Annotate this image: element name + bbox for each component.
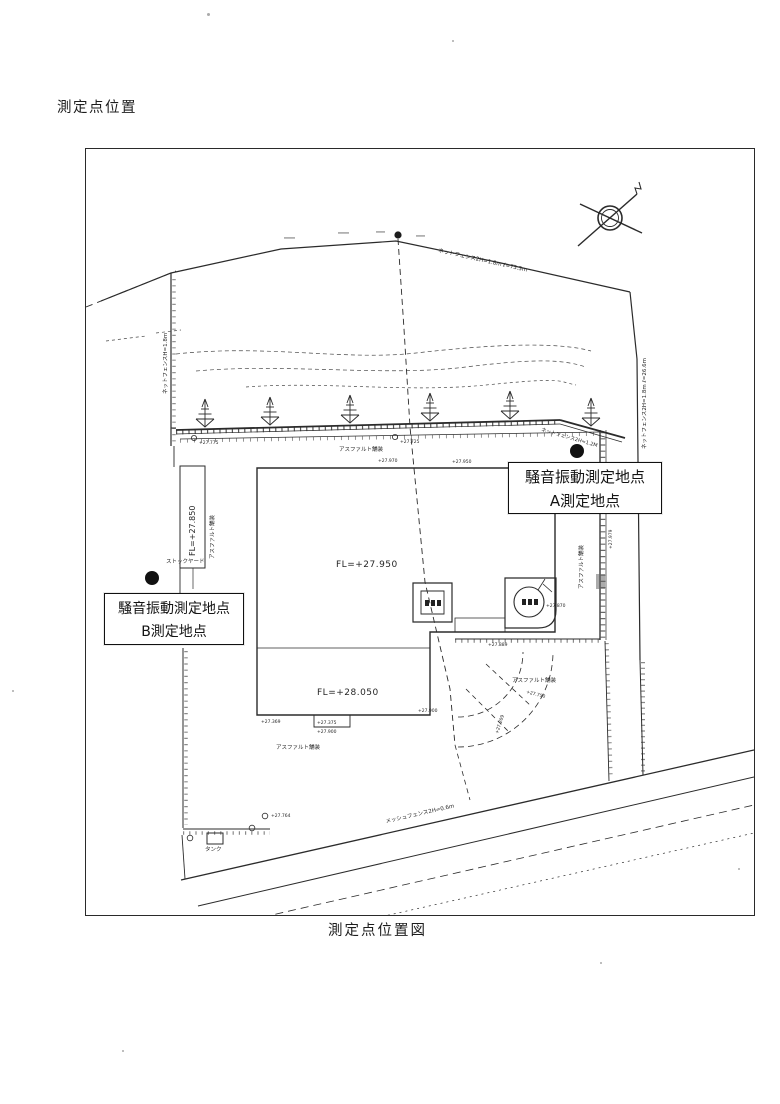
elev-27369: +27.369 [261, 719, 281, 725]
callout-b-title: 騒音振動測定地点 [118, 598, 230, 618]
asphalt-label-1: アスファルト舗装 [339, 445, 384, 453]
scan-speckle [12, 690, 14, 692]
elev-27900-b: +27.900 [418, 708, 438, 714]
elev-27375: +27.375 [317, 720, 337, 726]
platform-structure [455, 618, 505, 632]
elev-27870: +27.870 [546, 603, 566, 609]
elev-27775-a: +27.775 [199, 440, 219, 446]
scan-micro-marks [284, 231, 425, 239]
elev-27979: +27.979 [608, 529, 614, 549]
scanned-page: 測定点位置 [0, 0, 780, 1104]
plan-labels: FL=+27.950 FL=+28.050 FL=+27.850 ネットフェンス… [162, 247, 648, 853]
fence-left-label: ネットフェンスH=1.8m [162, 333, 169, 394]
elev-27725: +27.725 [400, 439, 420, 445]
callout-measure-point-a: 騒音振動測定地点 A測定地点 [508, 462, 662, 514]
asphalt-label-5: アスファルト舗装 [208, 514, 216, 559]
road [181, 750, 754, 915]
fl-main-label: FL=+27.950 [336, 560, 398, 570]
site-plan-drawing: FL=+27.950 FL=+28.050 FL=+27.850 ネットフェンス… [86, 149, 754, 915]
scan-speckle [738, 868, 740, 870]
figure-frame: FL=+27.950 FL=+28.050 FL=+27.850 ネットフェンス… [85, 148, 755, 916]
elev-27970: +27.970 [378, 458, 398, 464]
contour-lines [106, 330, 591, 388]
scan-speckle [600, 962, 602, 964]
fence-right-label: ネットフェンス2H=1.8m ℓ=26.6m [641, 358, 648, 449]
elev-27750: +27.750 [525, 689, 546, 700]
tank-round-structure [505, 578, 556, 628]
fence-road-label: メッシュフェンス2H=0.6m [385, 803, 455, 825]
callout-a-point: A測定地点 [550, 490, 620, 511]
callout-a-title: 騒音振動測定地点 [525, 466, 645, 487]
scan-speckle [207, 13, 210, 16]
elev-27950: +27.950 [452, 459, 472, 465]
elev-27209: +27.209 [494, 714, 506, 735]
measure-point-b-dot [145, 571, 159, 585]
guard-structure [413, 583, 452, 622]
callout-measure-point-b: 騒音振動測定地点 B測定地点 [104, 593, 244, 645]
scan-speckle [452, 40, 454, 42]
yard-arcs [458, 652, 553, 747]
asphalt-label-3: アスファルト舗装 [512, 676, 557, 684]
north-arrow-icon [578, 182, 642, 246]
elev-27764: +27.764 [271, 813, 291, 819]
elev-27889: +27.889 [488, 642, 508, 648]
page-title: 測定点位置 [57, 96, 137, 117]
asphalt-label-2: アスファルト舗装 [276, 743, 321, 751]
fl-lower-label: FL=+28.050 [317, 688, 379, 698]
fence-top-label: ネットフェンス2H=1.8m ℓ=73.3m [438, 247, 528, 274]
elev-27900-a: +27.900 [317, 729, 337, 735]
fl-strip-label: FL=+27.850 [188, 506, 197, 556]
scan-speckle [122, 1050, 124, 1052]
callout-b-point: B測定地点 [141, 621, 207, 641]
stockyard-label: ストックヤード [166, 558, 205, 565]
tank-label: タンク [205, 845, 222, 853]
measure-point-a-dot [570, 444, 584, 458]
fence-middle-label: ネットフェンス2H=1.2M [540, 427, 598, 449]
asphalt-label-4: アスファルト舗装 [577, 544, 585, 589]
figure-caption: 測定点位置図 [328, 919, 427, 940]
